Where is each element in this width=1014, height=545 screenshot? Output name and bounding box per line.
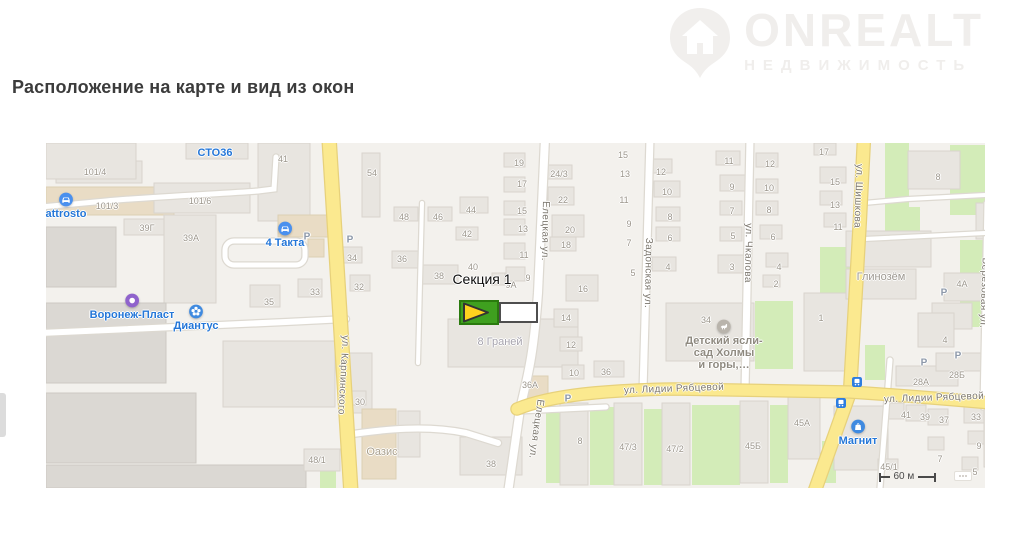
marker-building-outline [499, 302, 538, 323]
house-number: 36А [522, 380, 538, 390]
house-number: 7 [937, 454, 942, 464]
house-number: 45А [794, 418, 810, 428]
house-number: 36 [601, 367, 611, 377]
map-canvas[interactable]: 101/4101/3101/639Г39А4135333432544846444… [46, 143, 985, 488]
house-number: 35 [264, 297, 274, 307]
parking-icon: P [941, 288, 948, 299]
house-number: 28Б [949, 370, 965, 380]
house-number: 8 [935, 172, 940, 182]
house-number: 1 [818, 313, 823, 323]
house-number: 10 [569, 368, 579, 378]
house-number: 36 [397, 254, 407, 264]
store-icon [850, 419, 865, 434]
house-number: 15 [830, 177, 840, 187]
poi-ring: Воронеж-Пласт [90, 293, 175, 321]
house-number: 7 [729, 206, 734, 216]
house-number: 48 [399, 212, 409, 222]
house-number: 5 [730, 231, 735, 241]
poi-label: attrosto [46, 208, 86, 220]
bus-stop-icon [852, 374, 862, 384]
house-number: 11 [724, 156, 733, 166]
street-name-label: ул. Лидии Рябцевой [624, 382, 725, 396]
house-number: 9 [525, 273, 530, 283]
house-number: 9 [729, 182, 734, 192]
house-number: 34 [347, 253, 357, 263]
house-number: 11 [519, 250, 528, 260]
house-number: 101/4 [84, 167, 107, 177]
house-number: 8 [577, 436, 582, 446]
section-marker-label: Секция 1 [452, 271, 511, 287]
poi-flower: Диантус [174, 304, 219, 332]
house-number: 17 [819, 147, 829, 157]
parking-icon: P [304, 232, 311, 243]
page-edge-artifact [0, 393, 6, 437]
house-number: 48/1 [308, 455, 326, 465]
house-number: 3 [729, 262, 734, 272]
house-number: 101/3 [96, 201, 119, 211]
house-number: 42 [462, 229, 472, 239]
poi-label: Диантус [174, 320, 219, 332]
scale-label: 60 м [890, 471, 919, 483]
poi-car: attrosto [46, 192, 86, 220]
poi-kids: Детский ясли- сад Холмы и горы,… [685, 319, 762, 371]
onrealt-watermark-logo: ONREALT НЕДВИЖИМОСТЬ [668, 6, 984, 88]
house-number: 33 [310, 287, 320, 297]
house-number: 38 [486, 459, 496, 469]
street-name-label: ул. Чкалова [742, 223, 754, 283]
house-number: 54 [367, 168, 377, 178]
house-number: 17 [517, 179, 527, 189]
house-number: 13 [620, 169, 630, 179]
house-number: 8 [667, 212, 672, 222]
house-number: 9 [976, 441, 981, 451]
house-number: 47/3 [619, 442, 637, 452]
house-number: 12 [656, 167, 666, 177]
map-attribution-chip [954, 471, 972, 481]
bus-stop-icon [836, 395, 846, 405]
street-name-label: Берёзовая ул. [977, 257, 985, 328]
logo-brand-text: ONREALT [744, 6, 984, 54]
street-name-label: Елецкая ул. [526, 399, 545, 460]
house-number: 6 [667, 233, 672, 243]
house-number: 46 [433, 212, 443, 222]
car-icon [58, 192, 73, 207]
house-number: 47/2 [666, 444, 684, 454]
poi-label: 4 Такта [266, 237, 305, 249]
house-number: 20 [565, 225, 575, 235]
house-number: 11 [833, 222, 842, 232]
page-title: Расположение на карте и вид из окон [12, 77, 354, 98]
house-number: 5 [972, 467, 977, 477]
house-number: 14 [561, 313, 571, 323]
parking-icon: P [955, 351, 962, 362]
kids-icon [717, 319, 732, 334]
map-scale-bar: 60 м [879, 471, 936, 483]
house-number: 41 [278, 154, 288, 164]
street-name-label: ул. Шишкова [851, 164, 864, 229]
house-number: 4 [665, 262, 670, 272]
house-number: 22 [558, 195, 568, 205]
house-number: 7 [626, 238, 631, 248]
car-icon [278, 221, 293, 236]
house-number: 28А [913, 377, 929, 387]
poi-label: СТО36 [198, 147, 233, 159]
house-number: 13 [830, 200, 840, 210]
parking-icon: P [347, 235, 354, 246]
house-number: 12 [566, 340, 576, 350]
house-number: 37 [939, 415, 949, 425]
area-name-label: 8 Граней [477, 336, 522, 348]
poi-car: 4 Такта [266, 221, 305, 249]
house-number: 15 [618, 150, 628, 160]
house-number: 30 [355, 397, 365, 407]
house-number: 2 [773, 279, 778, 289]
house-number: 101/6 [189, 196, 212, 206]
house-number: 38 [434, 271, 444, 281]
house-number: 4А [956, 279, 967, 289]
house-number: 41 [901, 410, 911, 420]
area-name-label: Оазис [366, 446, 397, 458]
house-number: 34 [701, 315, 711, 325]
house-number: 9 [626, 219, 631, 229]
house-number: 10 [764, 183, 774, 193]
house-number: 32 [354, 282, 364, 292]
street-name-label: Задонская ул. [642, 238, 654, 309]
house-number: 10 [662, 187, 672, 197]
poi-store: Магнит [839, 419, 878, 447]
parking-icon: P [921, 358, 928, 369]
street-name-label: ул. Карпинского [335, 335, 350, 415]
house-number: 11 [619, 195, 628, 205]
parking-icon: P [565, 394, 572, 405]
house-number: 18 [561, 240, 571, 250]
view-direction-icon [461, 302, 497, 323]
house-number: 39Г [140, 223, 155, 233]
logo-pin-icon [668, 6, 732, 88]
street-name-label: Елецкая ул. [539, 201, 551, 261]
house-number: 4 [942, 335, 947, 345]
house-number: 15 [517, 206, 527, 216]
marker-section-highlight [459, 300, 499, 325]
house-number: 33 [971, 412, 981, 422]
poi-label: Воронеж-Пласт [90, 309, 175, 321]
logo-subtitle-text: НЕДВИЖИМОСТЬ [744, 57, 984, 74]
house-number: 12 [765, 159, 775, 169]
house-number: 5 [630, 268, 635, 278]
house-number: 39 [920, 412, 930, 422]
flower-icon [188, 304, 203, 319]
poi-label: Магнит [839, 435, 878, 447]
house-number: 16 [578, 284, 588, 294]
house-number: 45Б [745, 441, 761, 451]
house-number: 13 [518, 224, 528, 234]
house-number: 8 [766, 205, 771, 215]
poi-label: СТО36 [198, 146, 233, 159]
house-number: 39А [183, 233, 199, 243]
poi-label: Детский ясли- сад Холмы и горы,… [685, 335, 762, 371]
house-number: 19 [514, 158, 524, 168]
house-number: 4 [776, 262, 781, 272]
house-number: 6 [770, 232, 775, 242]
area-name-label: Глинозём [857, 271, 906, 283]
house-number: 24/3 [550, 169, 568, 179]
house-number: 44 [466, 205, 476, 215]
ring-icon [124, 293, 139, 308]
street-name-label: ул. Лидии Рябцевой [884, 391, 985, 405]
